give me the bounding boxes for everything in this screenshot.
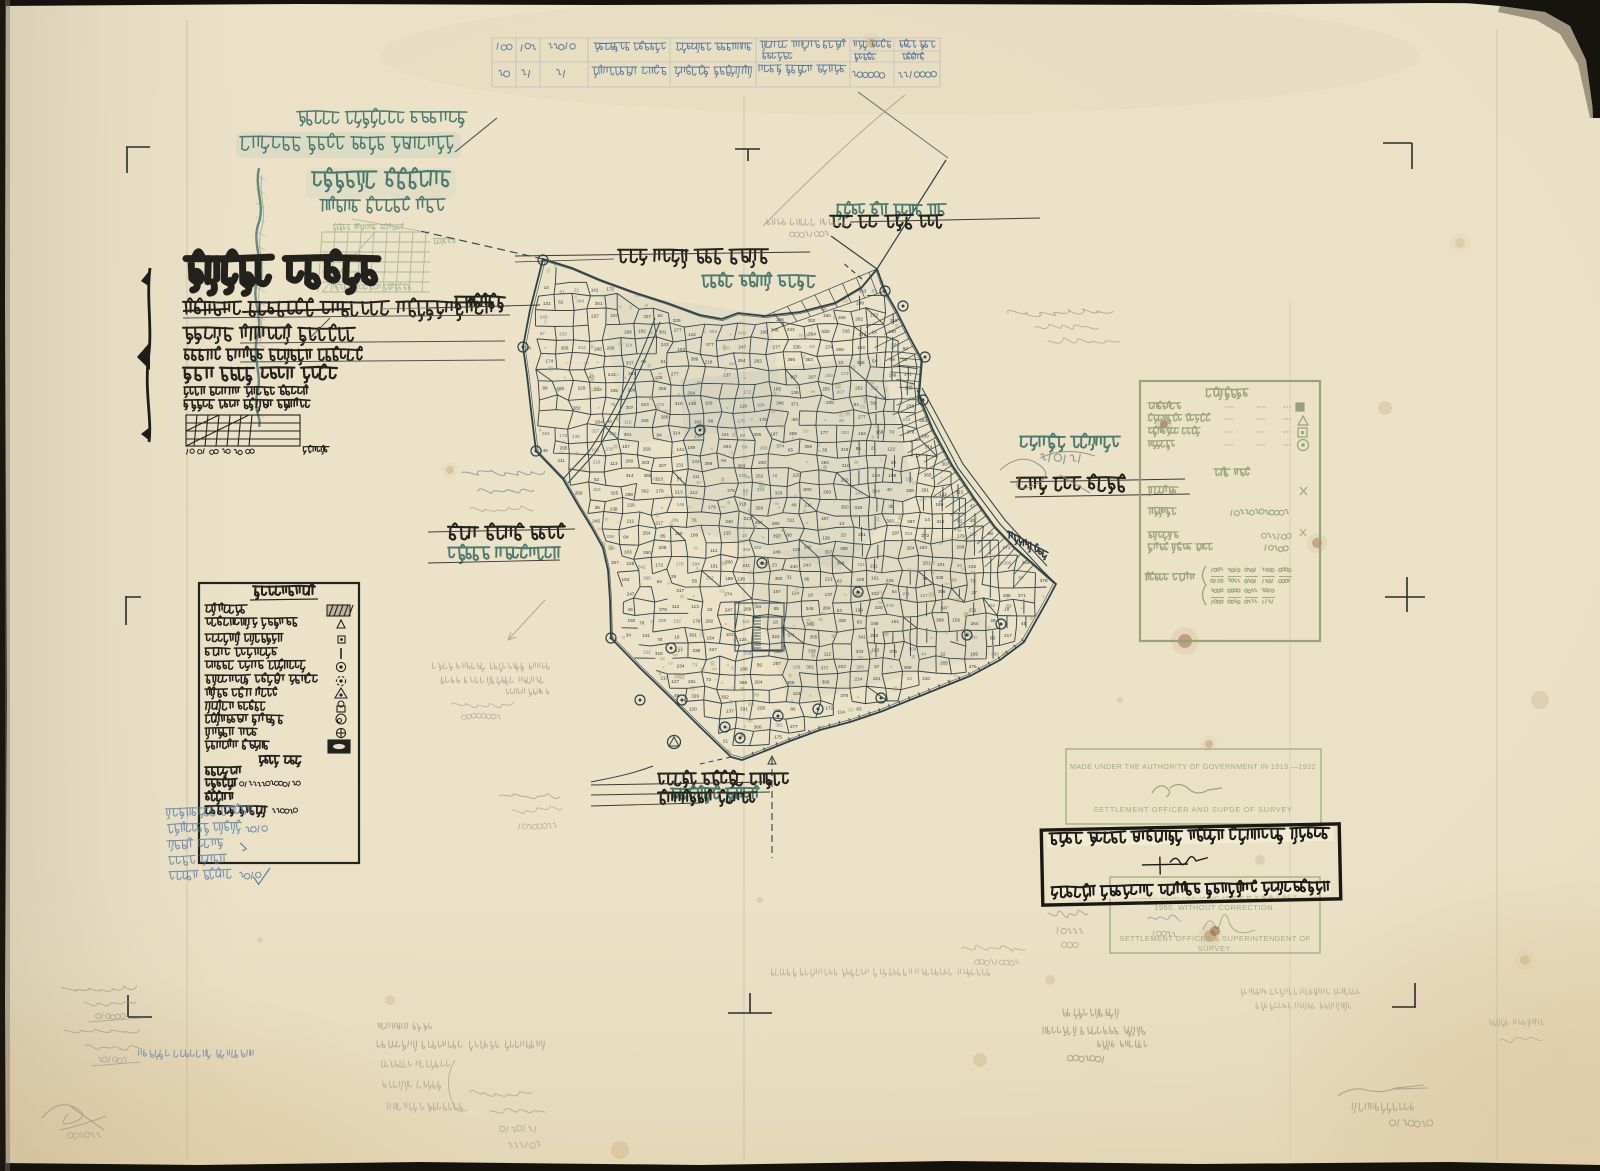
svg-text:316: 316 <box>655 651 663 656</box>
svg-text:14: 14 <box>925 517 931 522</box>
svg-text:298: 298 <box>625 492 633 497</box>
svg-text:26: 26 <box>671 574 677 579</box>
svg-text:274: 274 <box>724 592 732 597</box>
svg-text:316: 316 <box>842 329 850 334</box>
svg-text:247: 247 <box>725 607 733 612</box>
svg-text:333: 333 <box>559 332 567 337</box>
svg-text:150: 150 <box>823 313 831 318</box>
svg-text:197: 197 <box>892 530 900 535</box>
svg-text:260: 260 <box>625 459 633 464</box>
svg-text:371: 371 <box>1018 593 1026 598</box>
svg-text:203: 203 <box>642 460 650 465</box>
svg-text:131: 131 <box>676 462 684 467</box>
svg-text:254: 254 <box>905 531 913 536</box>
svg-text:98: 98 <box>542 386 548 391</box>
svg-text:356: 356 <box>609 431 617 436</box>
svg-text:260: 260 <box>643 550 651 555</box>
svg-text:218: 218 <box>593 460 601 465</box>
svg-text:59: 59 <box>757 662 763 667</box>
svg-text:SETTLEMENT OFFICER & SUPERINTE: SETTLEMENT OFFICER & SUPERINTENDENT OF <box>1119 934 1310 943</box>
svg-text:83: 83 <box>856 706 862 711</box>
svg-text:327: 327 <box>591 429 599 434</box>
svg-text:342: 342 <box>638 564 646 569</box>
svg-text:149: 149 <box>889 373 897 378</box>
svg-text:78: 78 <box>610 402 616 407</box>
svg-text:55: 55 <box>692 578 698 583</box>
svg-text:343: 343 <box>787 327 795 332</box>
svg-text:14: 14 <box>544 285 550 290</box>
svg-text:204: 204 <box>755 679 763 684</box>
svg-text:213: 213 <box>675 490 683 495</box>
svg-text:266: 266 <box>561 345 569 350</box>
svg-text:302: 302 <box>641 488 649 493</box>
svg-text:259: 259 <box>643 447 651 452</box>
svg-text:120: 120 <box>689 707 697 712</box>
svg-text:233: 233 <box>870 313 878 318</box>
svg-text:78: 78 <box>657 637 663 642</box>
svg-text:64: 64 <box>657 579 663 584</box>
svg-text:317: 317 <box>676 588 684 593</box>
svg-text:223: 223 <box>902 417 910 422</box>
svg-text:73: 73 <box>706 677 712 682</box>
svg-text:211: 211 <box>627 519 635 524</box>
svg-text:258: 258 <box>606 534 614 539</box>
svg-text:300: 300 <box>725 559 733 564</box>
svg-text:329: 329 <box>691 693 699 698</box>
svg-text:SURVEY.: SURVEY. <box>1198 944 1233 953</box>
svg-text:266: 266 <box>594 346 602 351</box>
svg-text:111: 111 <box>558 458 566 463</box>
svg-text:299: 299 <box>856 301 864 306</box>
svg-text:277: 277 <box>790 724 798 729</box>
svg-text:327: 327 <box>659 463 667 468</box>
svg-text:325: 325 <box>610 490 618 495</box>
svg-text:267: 267 <box>706 576 714 581</box>
svg-text:314: 314 <box>626 473 634 478</box>
svg-text:169: 169 <box>935 502 943 507</box>
svg-text:386: 386 <box>787 357 795 362</box>
svg-text:45: 45 <box>628 607 634 612</box>
svg-text:137: 137 <box>726 708 734 713</box>
svg-text:217: 217 <box>1004 633 1012 638</box>
svg-text:281: 281 <box>671 518 679 523</box>
svg-text:113: 113 <box>691 604 699 609</box>
svg-text:166: 166 <box>838 315 846 320</box>
svg-text:22: 22 <box>907 676 913 681</box>
svg-text:208: 208 <box>658 618 666 623</box>
svg-text:112: 112 <box>672 604 680 609</box>
svg-text:52: 52 <box>594 477 600 482</box>
svg-text:146: 146 <box>677 502 685 507</box>
svg-text:301: 301 <box>595 301 603 306</box>
svg-text:243: 243 <box>540 315 548 320</box>
svg-text:188: 188 <box>740 666 748 671</box>
svg-text:174: 174 <box>545 358 553 363</box>
svg-text:150: 150 <box>675 531 683 536</box>
svg-text:368: 368 <box>739 680 747 685</box>
svg-text:247: 247 <box>627 592 635 597</box>
svg-text:159: 159 <box>725 576 733 581</box>
svg-text:114: 114 <box>838 710 846 715</box>
svg-text:122: 122 <box>643 650 651 655</box>
svg-text:64: 64 <box>623 535 629 540</box>
svg-text:227: 227 <box>709 647 717 652</box>
svg-text:191: 191 <box>688 679 696 684</box>
svg-text:172: 172 <box>606 287 614 292</box>
svg-text:178: 178 <box>559 433 567 438</box>
svg-text:269: 269 <box>575 490 583 495</box>
svg-text:234: 234 <box>677 663 685 668</box>
svg-text:104: 104 <box>593 487 601 492</box>
svg-text:22: 22 <box>707 607 713 612</box>
svg-text:300: 300 <box>754 724 762 729</box>
svg-text:192: 192 <box>628 618 636 623</box>
svg-text:202: 202 <box>855 317 863 322</box>
svg-text:365: 365 <box>644 473 652 478</box>
svg-text:287: 287 <box>907 519 915 524</box>
svg-text:154: 154 <box>707 635 715 640</box>
svg-text:204: 204 <box>595 420 603 425</box>
svg-text:228: 228 <box>757 705 765 710</box>
svg-text:1950, WITHOUT CORRECTION.: 1950, WITHOUT CORRECTION. <box>1154 903 1275 912</box>
svg-text:19: 19 <box>674 635 680 640</box>
svg-text:179: 179 <box>656 488 664 493</box>
svg-text:378: 378 <box>840 693 848 698</box>
svg-text:225: 225 <box>626 561 634 566</box>
svg-text:245: 245 <box>592 519 600 524</box>
svg-text:217: 217 <box>655 520 663 525</box>
svg-text:124: 124 <box>739 637 747 642</box>
svg-text:336: 336 <box>793 345 801 350</box>
svg-text:141: 141 <box>642 633 650 638</box>
svg-text:MADE UNDER THE AUTHORITY O: MADE UNDER THE AUTHORITY OF GOVERNMENT I… <box>1070 762 1316 771</box>
svg-text:268: 268 <box>744 607 752 612</box>
svg-text:21: 21 <box>723 738 729 743</box>
svg-text:180: 180 <box>690 532 698 537</box>
svg-text:141: 141 <box>677 447 685 452</box>
svg-text:SETTLEMENT OFFICER AND SUPD: SETTLEMENT OFFICER AND SUPDE OF SURVEY <box>1093 805 1292 814</box>
svg-text:35: 35 <box>595 505 601 510</box>
svg-text:383: 383 <box>805 357 813 362</box>
svg-text:208: 208 <box>659 545 667 550</box>
svg-text:291: 291 <box>921 488 929 493</box>
svg-text:127: 127 <box>671 679 679 684</box>
svg-text:195: 195 <box>1003 593 1011 598</box>
svg-text:338: 338 <box>692 648 700 653</box>
svg-text:78: 78 <box>639 621 645 626</box>
svg-text:313: 313 <box>955 489 963 494</box>
svg-text:81: 81 <box>560 289 566 294</box>
svg-text:21: 21 <box>574 287 580 292</box>
svg-text:391: 391 <box>775 723 783 728</box>
svg-text:120: 120 <box>627 502 635 507</box>
svg-text:60: 60 <box>990 636 996 641</box>
svg-text:302: 302 <box>808 318 816 323</box>
svg-text:392: 392 <box>743 547 751 552</box>
svg-text:62: 62 <box>558 299 564 304</box>
svg-text:352: 352 <box>721 694 729 699</box>
svg-text:265: 265 <box>836 347 844 352</box>
svg-text:378: 378 <box>1040 578 1048 583</box>
svg-text:331: 331 <box>740 706 748 711</box>
svg-text:383: 383 <box>924 473 932 478</box>
svg-text:307: 307 <box>611 560 619 565</box>
svg-text:294: 294 <box>692 562 700 567</box>
svg-text:151: 151 <box>710 563 718 568</box>
svg-text:282: 282 <box>573 405 581 410</box>
svg-text:361: 361 <box>689 632 697 637</box>
svg-text:45: 45 <box>1021 621 1027 626</box>
svg-text:170: 170 <box>676 561 684 566</box>
svg-text:179: 179 <box>693 618 701 623</box>
svg-text:34: 34 <box>626 633 632 638</box>
svg-text:342: 342 <box>578 345 586 350</box>
svg-text:122: 122 <box>939 492 947 497</box>
svg-text:110: 110 <box>742 619 750 624</box>
svg-text:379: 379 <box>659 607 667 612</box>
svg-text:292: 292 <box>705 619 713 624</box>
svg-text:57: 57 <box>677 476 683 481</box>
svg-text:274: 274 <box>825 345 833 350</box>
svg-text:344: 344 <box>576 298 584 303</box>
svg-text:141: 141 <box>591 287 599 292</box>
svg-text:175: 175 <box>774 735 782 740</box>
svg-text:319: 319 <box>890 318 898 323</box>
svg-text:217: 217 <box>660 675 668 680</box>
svg-text:390: 390 <box>643 576 651 581</box>
svg-text:172: 172 <box>655 562 663 567</box>
svg-text:113: 113 <box>610 461 618 466</box>
svg-text:57: 57 <box>540 331 546 336</box>
svg-text:144: 144 <box>857 345 865 350</box>
svg-text:49: 49 <box>990 618 996 623</box>
svg-text:103: 103 <box>726 632 734 637</box>
svg-text:210: 210 <box>922 676 930 681</box>
svg-text:63: 63 <box>810 344 816 349</box>
svg-text:389: 389 <box>991 652 999 657</box>
svg-text:138: 138 <box>737 577 745 582</box>
svg-text:284: 284 <box>542 431 550 436</box>
svg-text:295: 295 <box>560 446 568 451</box>
svg-text:202: 202 <box>987 603 995 608</box>
svg-text:85: 85 <box>660 533 666 538</box>
svg-text:81: 81 <box>957 518 963 523</box>
svg-text:275: 275 <box>969 664 977 669</box>
svg-text:319: 319 <box>937 519 945 524</box>
svg-text:229: 229 <box>578 385 586 390</box>
svg-text:73: 73 <box>692 663 698 668</box>
svg-text:132: 132 <box>673 618 681 623</box>
svg-text:163: 163 <box>622 577 630 582</box>
svg-text:227: 227 <box>591 314 599 319</box>
svg-text:111: 111 <box>710 548 718 553</box>
svg-text:138: 138 <box>572 434 580 439</box>
svg-text:206: 206 <box>1003 560 1011 565</box>
svg-text:86: 86 <box>790 707 796 712</box>
svg-text:235: 235 <box>605 446 613 451</box>
svg-text:172: 172 <box>825 706 833 711</box>
svg-text:254: 254 <box>643 530 651 535</box>
svg-text:131: 131 <box>543 301 551 306</box>
svg-text:163: 163 <box>624 550 632 555</box>
